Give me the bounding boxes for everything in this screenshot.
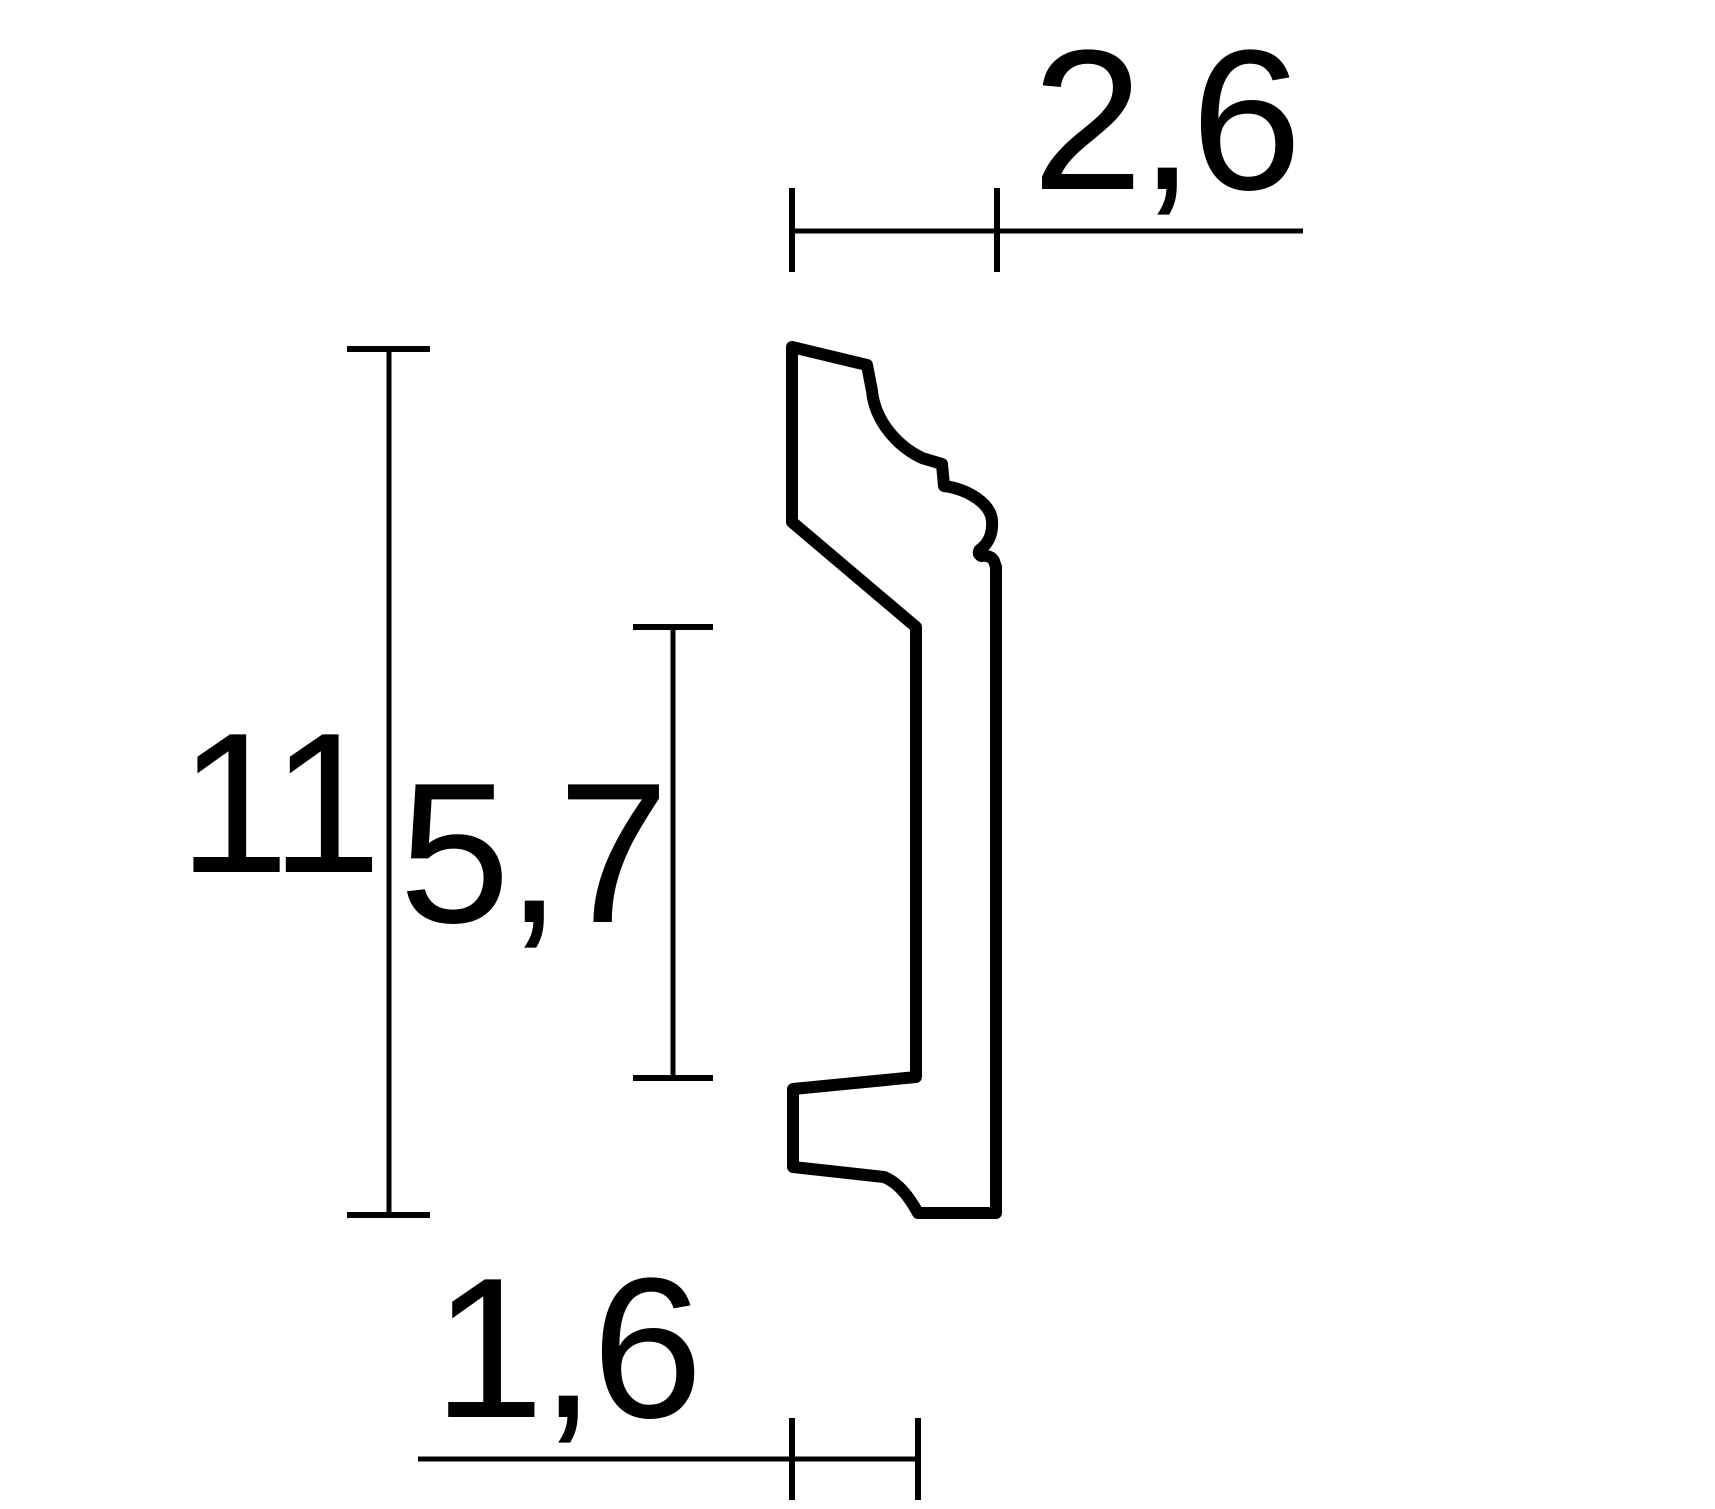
- moulding-profile-outline: [792, 347, 996, 1213]
- dimension-bottom-width: 1,6: [418, 1237, 918, 1500]
- dimension-top-width: 2,6: [792, 9, 1303, 272]
- dimension-middle-height: 5,7: [399, 627, 713, 1078]
- technical-drawing-canvas: 2,6 11 5,7 1,6: [0, 0, 1715, 1509]
- drawing-svg: 2,6 11 5,7 1,6: [0, 0, 1715, 1509]
- dimension-label-bottom-width: 1,6: [433, 1237, 699, 1460]
- dimension-label-top-width: 2,6: [1032, 9, 1298, 232]
- dimension-total-height: 11: [178, 349, 430, 1215]
- dimension-label-middle-height: 5,7: [399, 742, 665, 965]
- dimension-label-total-height: 11: [178, 692, 378, 915]
